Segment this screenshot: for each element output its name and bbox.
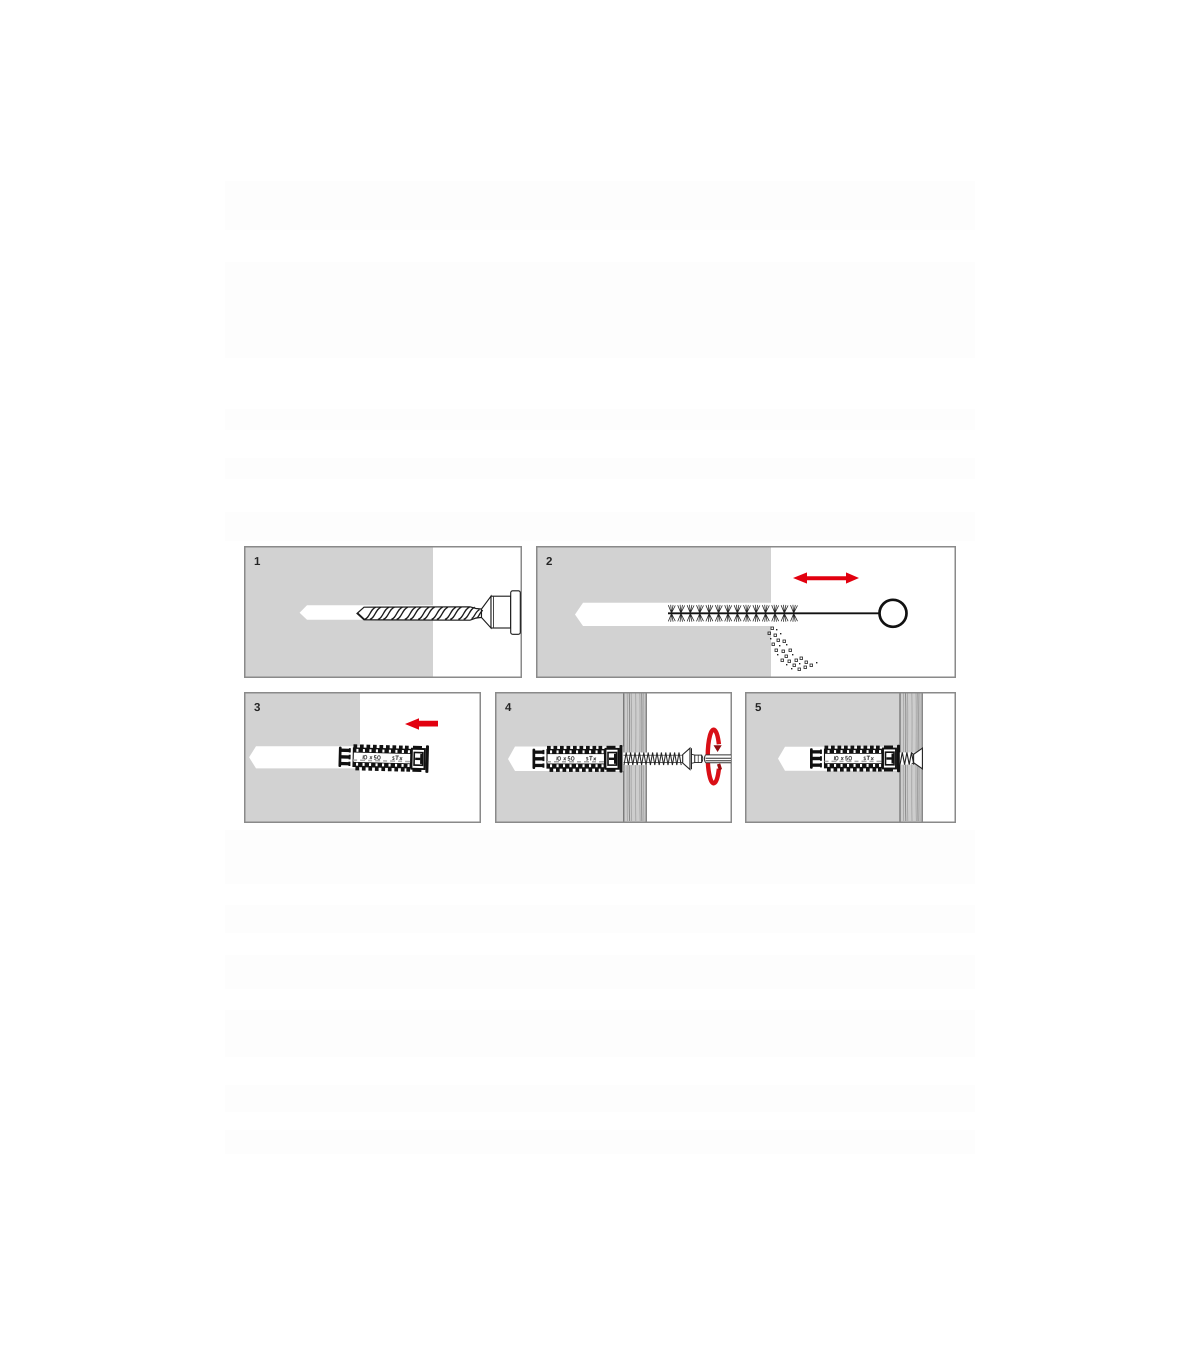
svg-text:1: 1	[254, 556, 261, 568]
svg-text:5: 5	[755, 702, 762, 714]
svg-text:4: 4	[505, 702, 512, 714]
svg-text:3: 3	[254, 702, 260, 714]
svg-text:2: 2	[546, 556, 552, 568]
